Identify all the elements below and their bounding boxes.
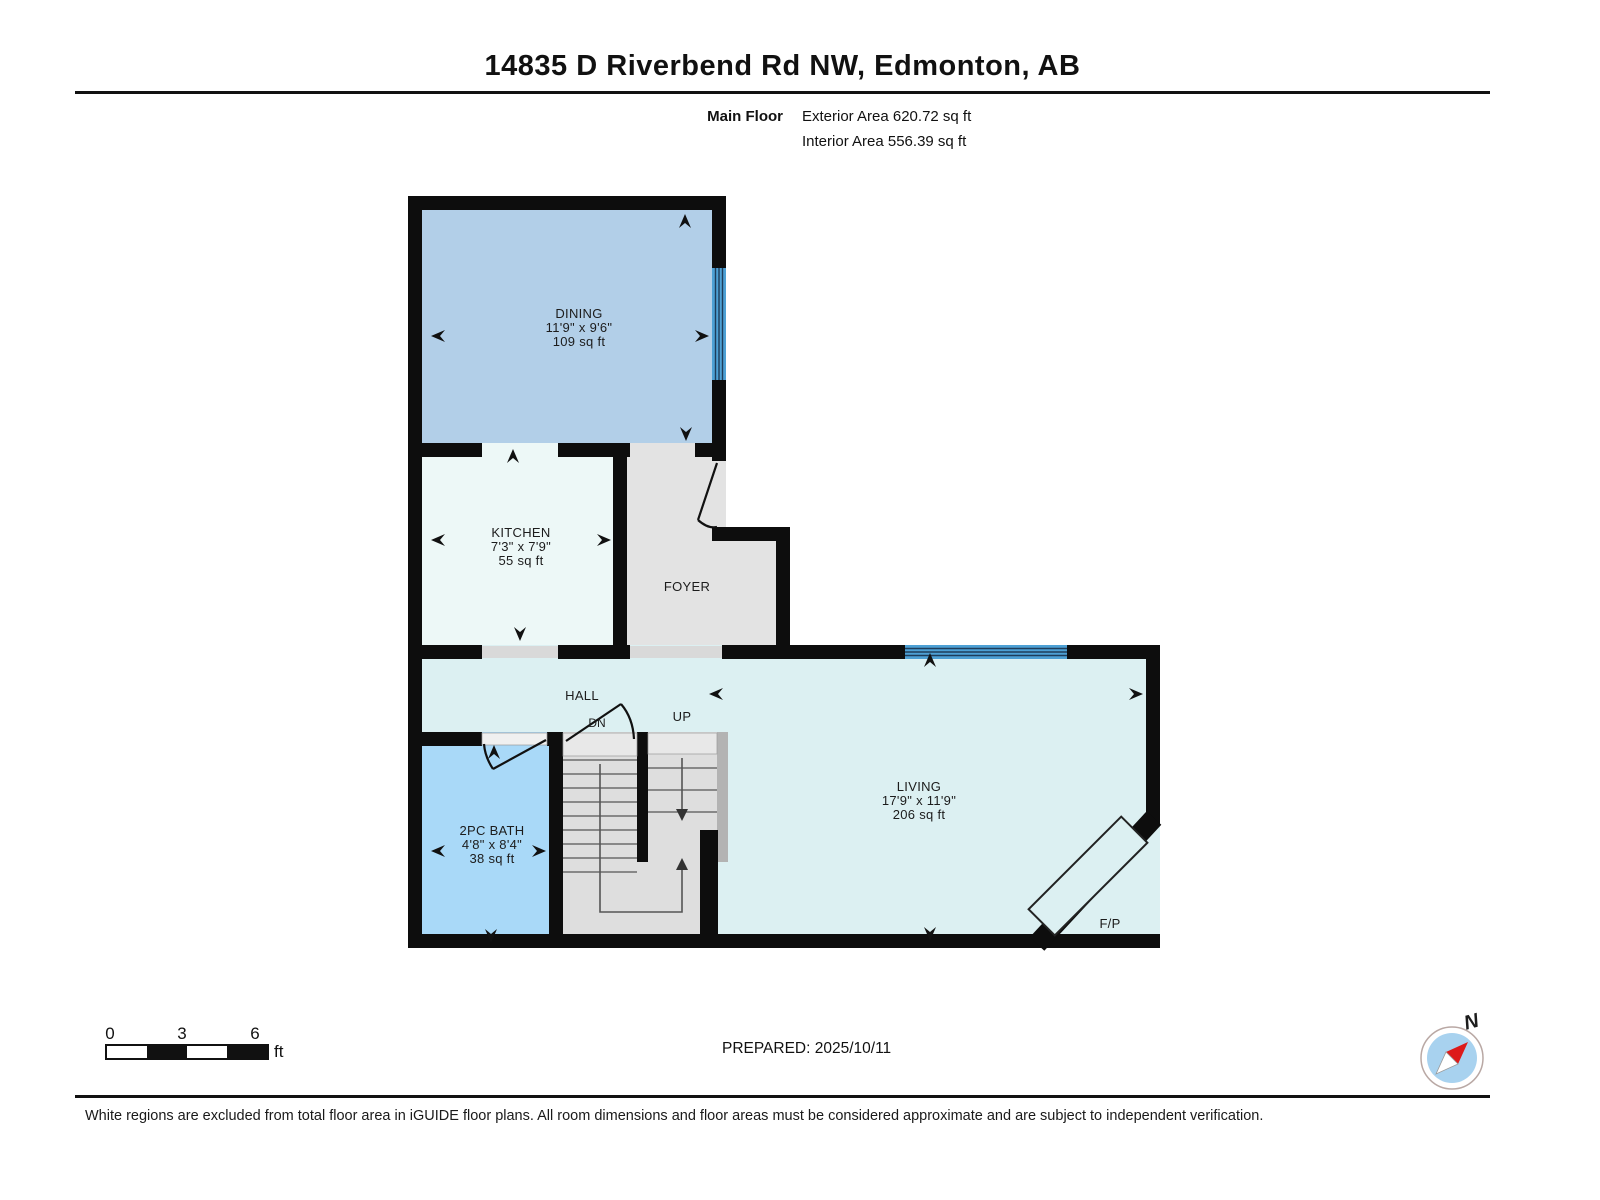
wall-hall-top-2: [558, 645, 630, 659]
wall-stairs-living: [700, 830, 718, 948]
scale-bar: [105, 1044, 269, 1060]
wall-bath-stairs: [549, 732, 563, 948]
dining-sqft: 109 sq ft: [553, 334, 606, 349]
kitchen-dims: 7'3" x 7'9": [491, 539, 551, 554]
foyer-area-lower: [627, 531, 790, 658]
stairs-up-label: UP: [673, 709, 692, 724]
wall-dining-top: [408, 196, 726, 210]
wall-living-right: [1146, 645, 1160, 825]
foyer-hall-opening: [630, 646, 722, 658]
floor-plan-page: { "header": { "title": "14835 D Riverben…: [0, 0, 1600, 1200]
scale-tick-0: 0: [105, 1024, 114, 1044]
living-label: LIVING: [897, 779, 941, 794]
compass: N: [1421, 1010, 1483, 1089]
wall-dining-kitchen-left: [422, 443, 482, 457]
wall-living-top-left: [722, 645, 905, 659]
scale-bar-segment: [227, 1046, 267, 1058]
footer-divider: [75, 1095, 1490, 1098]
foyer-label: FOYER: [664, 579, 710, 594]
stair-up-landing: [648, 733, 717, 754]
scale-bar-segment: [187, 1046, 227, 1058]
wall-stairs-middle: [637, 732, 648, 862]
scale-tick-6: 6: [250, 1024, 259, 1044]
disclaimer-text: White regions are excluded from total fl…: [85, 1108, 1485, 1124]
scale-unit-label: ft: [274, 1042, 283, 1062]
wall-bath-top: [408, 732, 482, 746]
kitchen-hall-opening: [482, 646, 558, 658]
kitchen-label: KITCHEN: [491, 525, 550, 540]
prepared-date: PREPARED: 2025/10/11: [722, 1040, 891, 1058]
wall-hall-top-1: [408, 645, 482, 659]
wall-foyer-right: [776, 541, 790, 658]
living-sqft: 206 sq ft: [893, 807, 946, 822]
wall-kitchen-right: [613, 443, 627, 658]
scale-bar-segment: [147, 1046, 187, 1058]
dining-dims: 11'9" x 9'6": [546, 320, 613, 335]
stairs-dn-label: DN: [588, 716, 605, 730]
bath-label: 2PC BATH: [459, 823, 524, 838]
wall-dining-foyer-stub: [695, 443, 726, 457]
fireplace-label: F/P: [1099, 916, 1120, 931]
scale-tick-3: 3: [177, 1024, 186, 1044]
hall-label: HALL: [565, 688, 599, 703]
bath-door-threshold: [482, 733, 547, 745]
living-dims: 17'9" x 11'9": [882, 793, 956, 808]
floor-plan-drawing: DINING 11'9" x 9'6" 109 sq ft KITCHEN 7'…: [0, 0, 1600, 1200]
bath-dims: 4'8" x 8'4": [462, 837, 522, 852]
stair-rail-strip: [717, 732, 728, 862]
wall-dining-right-upper: [712, 196, 726, 268]
bath-sqft: 38 sq ft: [469, 851, 514, 866]
wall-foyer-notch-top: [712, 527, 790, 541]
kitchen-sqft: 55 sq ft: [498, 553, 543, 568]
dining-label: DINING: [555, 306, 602, 321]
wall-left-outer: [408, 196, 422, 948]
scale-bar-segment: [107, 1046, 147, 1058]
